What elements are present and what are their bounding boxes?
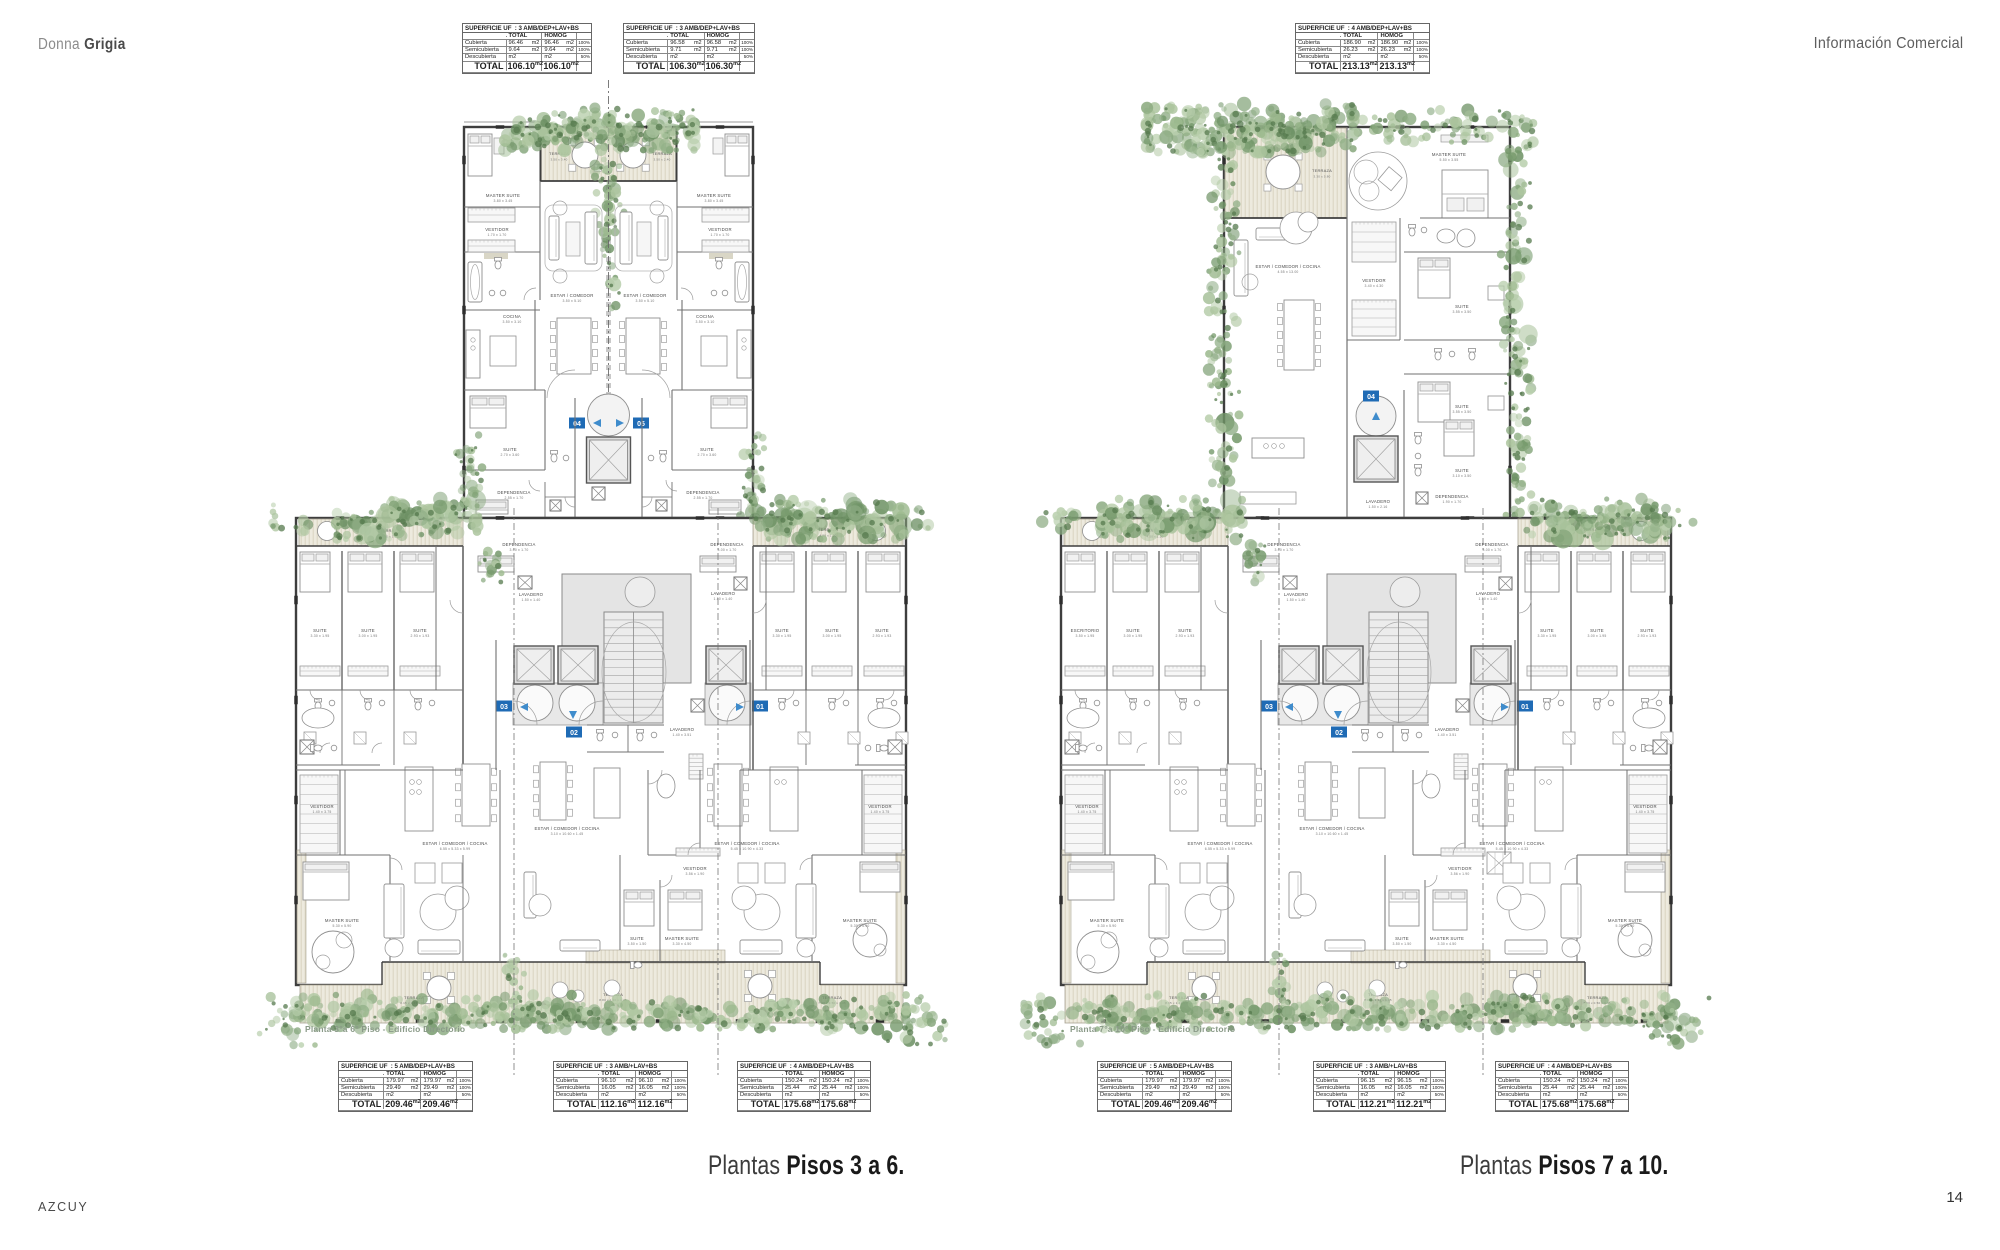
svg-text:LAVADERO: LAVADERO <box>519 592 544 597</box>
svg-text:DEPENDENCIA: DEPENDENCIA <box>502 542 535 547</box>
svg-text:ESTAR / COMEDOR: ESTAR / COMEDOR <box>550 293 593 298</box>
svg-text:1.40 x 3.51: 1.40 x 3.51 <box>1438 733 1457 737</box>
svg-text:VESTIDOR: VESTIDOR <box>485 227 509 232</box>
svg-text:3.50 x 3.40: 3.50 x 3.40 <box>550 158 567 162</box>
svg-text:3.55 x 3.50: 3.55 x 3.50 <box>1453 310 1472 314</box>
svg-text:3.30 x 5.80: 3.30 x 5.80 <box>1313 175 1330 179</box>
svg-text:3.80 x 3.45: 3.80 x 3.45 <box>494 199 513 203</box>
svg-text:1.50 x 1.40: 1.50 x 1.40 <box>522 598 541 602</box>
svg-text:03: 03 <box>500 704 508 711</box>
svg-text:01: 01 <box>1521 704 1529 711</box>
svg-text:3.55 x 3.50: 3.55 x 3.50 <box>1453 410 1472 414</box>
svg-text:ESTAR / COMEDOR: ESTAR / COMEDOR <box>623 293 666 298</box>
svg-text:ESTAR / COMEDOR / COCINA: ESTAR / COMEDOR / COCINA <box>1299 826 1364 831</box>
svg-text:1.50 x 1.40: 1.50 x 1.40 <box>1287 598 1306 602</box>
svg-text:5.45 x 10.90 x 4.33: 5.45 x 10.90 x 4.33 <box>731 847 764 851</box>
svg-text:DEPENDENCIA: DEPENDENCIA <box>1267 542 1300 547</box>
svg-text:DEPENDENCIA: DEPENDENCIA <box>710 542 743 547</box>
svg-text:VESTIDOR: VESTIDOR <box>310 804 334 809</box>
svg-text:3.00 x 1.70: 3.00 x 1.70 <box>1483 548 1502 552</box>
svg-text:1.70 x 1.70: 1.70 x 1.70 <box>488 233 507 237</box>
svg-text:SUITE: SUITE <box>775 628 789 633</box>
svg-text:VESTIDOR: VESTIDOR <box>868 804 892 809</box>
svg-text:ESTAR / COMEDOR / COCINA: ESTAR / COMEDOR / COCINA <box>422 841 487 846</box>
svg-text:SUITE: SUITE <box>361 628 375 633</box>
svg-text:VESTIDOR: VESTIDOR <box>1448 866 1472 871</box>
svg-text:01: 01 <box>756 704 764 711</box>
svg-text:MASTER SUITE: MASTER SUITE <box>325 918 359 923</box>
svg-text:2.93 x 1.93: 2.93 x 1.93 <box>873 634 892 638</box>
svg-text:1.40 x 3.75: 1.40 x 3.75 <box>1078 810 1097 814</box>
svg-text:3.00 x 1.95: 3.00 x 1.95 <box>823 634 842 638</box>
svg-text:MASTER SUITE: MASTER SUITE <box>697 193 731 198</box>
svg-text:3.50 x 2.40: 3.50 x 2.40 <box>653 158 670 162</box>
svg-text:3.40 x 4.30: 3.40 x 4.30 <box>1365 284 1384 288</box>
svg-text:SUITE: SUITE <box>503 447 517 452</box>
svg-text:DEPENDENCIA: DEPENDENCIA <box>497 490 530 495</box>
svg-text:MASTER SUITE: MASTER SUITE <box>1430 936 1464 941</box>
svg-text:3.00 x 1.95: 3.00 x 1.95 <box>359 634 378 638</box>
svg-text:3.50 x 5.10: 3.50 x 5.10 <box>563 299 582 303</box>
svg-text:VESTIDOR: VESTIDOR <box>683 866 707 871</box>
svg-text:3.00 x 1.70: 3.00 x 1.70 <box>510 548 529 552</box>
svg-text:3.50 x 1.50: 3.50 x 1.50 <box>1393 942 1412 946</box>
svg-text:4.55 x 13.00: 4.55 x 13.00 <box>1277 270 1298 274</box>
svg-text:3.00 x 1.95: 3.00 x 1.95 <box>1124 634 1143 638</box>
svg-text:SUITE: SUITE <box>1640 628 1654 633</box>
svg-text:ESTAR / COMEDOR / COCINA: ESTAR / COMEDOR / COCINA <box>714 841 779 846</box>
svg-text:02: 02 <box>1335 730 1343 737</box>
svg-text:3.00 x 1.70: 3.00 x 1.70 <box>718 548 737 552</box>
svg-text:MASTER SUITE: MASTER SUITE <box>486 193 520 198</box>
svg-text:DEPENDENCIA: DEPENDENCIA <box>686 490 719 495</box>
svg-text:05: 05 <box>637 421 645 428</box>
svg-text:LAVADERO: LAVADERO <box>670 727 695 732</box>
svg-text:MASTER SUITE: MASTER SUITE <box>843 918 877 923</box>
svg-text:1.40 x 3.75: 1.40 x 3.75 <box>1636 810 1655 814</box>
svg-text:3.30 x 1.95: 3.30 x 1.95 <box>773 634 792 638</box>
svg-text:DEPENDENCIA: DEPENDENCIA <box>1435 494 1468 499</box>
svg-text:MASTER SUITE: MASTER SUITE <box>1432 152 1466 157</box>
svg-text:5.50 x 3.55: 5.50 x 3.55 <box>1440 158 1459 162</box>
svg-text:COCINA: COCINA <box>696 314 714 319</box>
svg-text:LAVADERO: LAVADERO <box>1366 499 1391 504</box>
svg-text:2.93 x 1.93: 2.93 x 1.93 <box>411 634 430 638</box>
svg-text:3.00 x 1.70: 3.00 x 1.70 <box>1275 548 1294 552</box>
svg-text:5.30 x 5.90: 5.30 x 5.90 <box>1098 924 1117 928</box>
svg-text:04: 04 <box>573 421 581 428</box>
svg-text:5.30 x 5.90: 5.30 x 5.90 <box>1616 924 1635 928</box>
svg-text:SUITE: SUITE <box>630 936 644 941</box>
svg-text:SUITE: SUITE <box>1178 628 1192 633</box>
svg-text:3.50 x 5.10: 3.50 x 5.10 <box>636 299 655 303</box>
svg-text:SUITE: SUITE <box>825 628 839 633</box>
svg-text:LAVADERO: LAVADERO <box>1476 591 1501 596</box>
svg-text:1.50 x 1.40: 1.50 x 1.40 <box>714 597 733 601</box>
svg-text:ESCRITORIO: ESCRITORIO <box>1071 628 1100 633</box>
svg-text:VESTIDOR: VESTIDOR <box>1362 278 1386 283</box>
svg-text:3.30 x 4.50: 3.30 x 4.50 <box>1438 942 1457 946</box>
svg-text:3.10 x 10.60 x 1.45: 3.10 x 10.60 x 1.45 <box>551 832 584 836</box>
svg-text:5.30 x 5.90: 5.30 x 5.90 <box>333 924 352 928</box>
svg-text:1.40 x 3.51: 1.40 x 3.51 <box>673 733 692 737</box>
svg-text:2.70 x 3.60: 2.70 x 3.60 <box>698 453 717 457</box>
svg-text:1.70 x 1.70: 1.70 x 1.70 <box>711 233 730 237</box>
svg-text:3.56 x 1.90: 3.56 x 1.90 <box>686 872 705 876</box>
svg-text:SUITE: SUITE <box>1126 628 1140 633</box>
svg-text:TERRAZA: TERRAZA <box>1312 168 1332 173</box>
svg-text:VESTIDOR: VESTIDOR <box>1633 804 1657 809</box>
svg-text:SUITE: SUITE <box>1395 936 1409 941</box>
svg-text:3.30 x 4.50: 3.30 x 4.50 <box>673 942 692 946</box>
svg-text:2.70 x 3.60: 2.70 x 3.60 <box>501 453 520 457</box>
svg-text:LAVADERO: LAVADERO <box>711 591 736 596</box>
svg-text:SUITE: SUITE <box>1540 628 1554 633</box>
svg-text:MASTER SUITE: MASTER SUITE <box>1090 918 1124 923</box>
svg-text:3.30 x 1.95: 3.30 x 1.95 <box>1538 634 1557 638</box>
svg-text:04: 04 <box>1367 394 1375 401</box>
svg-text:2.93 x 1.93: 2.93 x 1.93 <box>1176 634 1195 638</box>
svg-text:SUITE: SUITE <box>1590 628 1604 633</box>
svg-text:ESTAR / COMEDOR / COCINA: ESTAR / COMEDOR / COCINA <box>534 826 599 831</box>
svg-text:5.30 x 5.90: 5.30 x 5.90 <box>851 924 870 928</box>
svg-text:SUITE: SUITE <box>875 628 889 633</box>
svg-text:COCINA: COCINA <box>503 314 521 319</box>
svg-text:03: 03 <box>1265 704 1273 711</box>
svg-text:3.80 x 3.45: 3.80 x 3.45 <box>705 199 724 203</box>
svg-text:3.10 x 10.60 x 1.45: 3.10 x 10.60 x 1.45 <box>1316 832 1349 836</box>
svg-text:MASTER SUITE: MASTER SUITE <box>1608 918 1642 923</box>
svg-text:ESTAR / COMEDOR / COCINA: ESTAR / COMEDOR / COCINA <box>1479 841 1544 846</box>
svg-text:6.55 x 5.33 x 5.99: 6.55 x 5.33 x 5.99 <box>440 847 471 851</box>
svg-text:5.45 x 10.90 x 4.33: 5.45 x 10.90 x 4.33 <box>1496 847 1529 851</box>
svg-text:3.10 x 3.50: 3.10 x 3.50 <box>1453 474 1472 478</box>
svg-text:LAVADERO: LAVADERO <box>1435 727 1460 732</box>
svg-text:3.30 x 1.95: 3.30 x 1.95 <box>311 634 330 638</box>
svg-text:3.00 x 1.95: 3.00 x 1.95 <box>1588 634 1607 638</box>
svg-text:ESTAR / COMEDOR / COCINA: ESTAR / COMEDOR / COCINA <box>1255 264 1320 269</box>
svg-text:ESTAR / COMEDOR / COCINA: ESTAR / COMEDOR / COCINA <box>1187 841 1252 846</box>
svg-text:3.50 x 1.50: 3.50 x 1.50 <box>628 942 647 946</box>
svg-text:3.56 x 1.90: 3.56 x 1.90 <box>1451 872 1470 876</box>
svg-text:VESTIDOR: VESTIDOR <box>708 227 732 232</box>
svg-text:SUITE: SUITE <box>1455 404 1469 409</box>
svg-text:SUITE: SUITE <box>1455 468 1469 473</box>
svg-text:1.50 x 1.40: 1.50 x 1.40 <box>1479 597 1498 601</box>
svg-text:MASTER SUITE: MASTER SUITE <box>665 936 699 941</box>
svg-text:1.90 x 1.70: 1.90 x 1.70 <box>1443 500 1462 504</box>
svg-text:SUITE: SUITE <box>700 447 714 452</box>
svg-text:SUITE: SUITE <box>413 628 427 633</box>
svg-text:02: 02 <box>570 730 578 737</box>
svg-text:3.50 x 3.10: 3.50 x 3.10 <box>696 320 715 324</box>
svg-text:VESTIDOR: VESTIDOR <box>1075 804 1099 809</box>
svg-text:3.50 x 3.10: 3.50 x 3.10 <box>503 320 522 324</box>
svg-text:3.50 x 1.95: 3.50 x 1.95 <box>1076 634 1095 638</box>
svg-text:DEPENDENCIA: DEPENDENCIA <box>1475 542 1508 547</box>
svg-text:SUITE: SUITE <box>1455 304 1469 309</box>
svg-text:LAVADERO: LAVADERO <box>1284 592 1309 597</box>
svg-text:1.50 x 2.16: 1.50 x 2.16 <box>1369 505 1388 509</box>
svg-text:1.40 x 3.75: 1.40 x 3.75 <box>313 810 332 814</box>
svg-text:SUITE: SUITE <box>313 628 327 633</box>
svg-text:2.93 x 1.93: 2.93 x 1.93 <box>1638 634 1657 638</box>
svg-text:1.40 x 3.75: 1.40 x 3.75 <box>871 810 890 814</box>
svg-text:2.55 x 1.70: 2.55 x 1.70 <box>505 496 524 500</box>
svg-text:6.55 x 5.33 x 5.99: 6.55 x 5.33 x 5.99 <box>1205 847 1236 851</box>
svg-text:2.55 x 1.70: 2.55 x 1.70 <box>694 496 713 500</box>
